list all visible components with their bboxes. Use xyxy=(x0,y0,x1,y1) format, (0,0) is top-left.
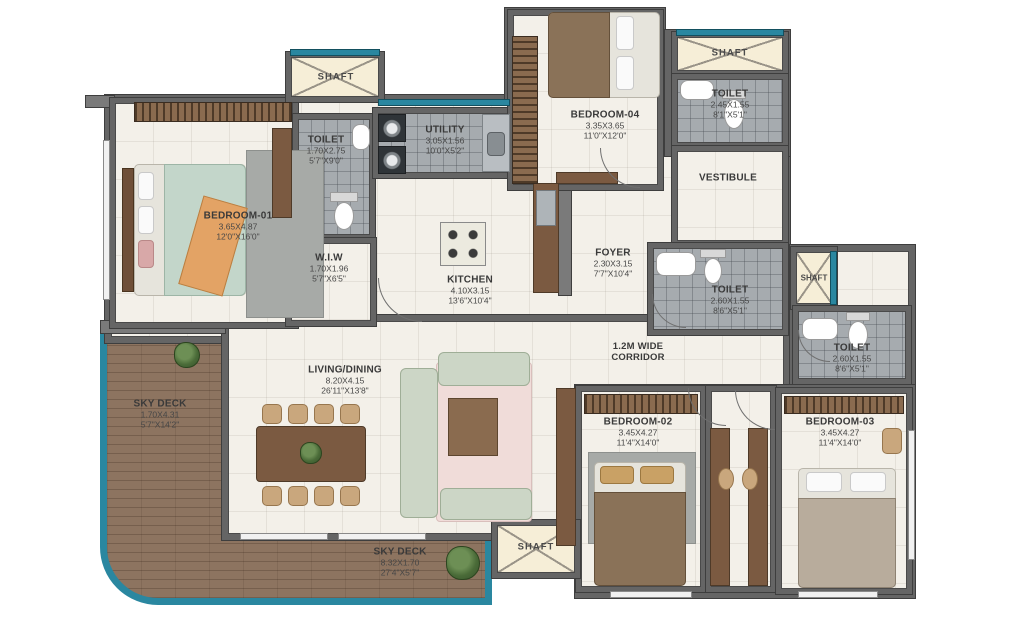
wardrobe-bedroom03-top xyxy=(784,396,904,414)
closet-chair-1 xyxy=(718,468,734,490)
window-bedroom03-right xyxy=(908,430,915,560)
label-sky-deck-bottom: SKY DECK 8.32X1.70 27'4"X5'7" xyxy=(373,547,426,578)
room-dim-imperial: 11'0"X12'0" xyxy=(571,131,640,141)
wall-kitchen-foyer xyxy=(558,178,572,296)
room-name: SHAFT xyxy=(801,274,828,283)
room-dim-metric: 8.32X1.70 xyxy=(373,558,426,568)
room-name: BEDROOM-04 xyxy=(571,110,640,121)
utility-washer-2 xyxy=(378,146,406,174)
pillow-bedroom02-2 xyxy=(640,466,674,484)
room-name: BEDROOM-03 xyxy=(806,417,875,428)
room-dim-metric: 3.65X4.87 xyxy=(204,222,273,232)
room-dim-imperial: 12'0"X16'0" xyxy=(204,232,273,242)
room-dim-metric: 3.05X1.56 xyxy=(425,136,464,146)
pillow-bedroom01-1 xyxy=(138,172,154,200)
label-vestibule: VESTIBULE xyxy=(699,173,757,184)
pillow-bedroom03-2 xyxy=(850,472,886,492)
room-name: TOILET xyxy=(307,135,346,146)
window-bedroom02-bottom xyxy=(610,591,692,598)
room-dim-metric: 4.10X3.15 xyxy=(447,286,493,296)
room-dim-imperial: 27'4"X5'7" xyxy=(373,568,426,578)
label-wiw: W.I.W 1.70X1.96 5'7"X6'5" xyxy=(310,253,349,284)
room-name: UTILITY xyxy=(425,125,464,136)
room-dim-metric: 2.60X1.55 xyxy=(833,354,872,364)
label-sky-deck-left: SKY DECK 1.70X4.31 5'7"X14'2" xyxy=(133,399,186,430)
room-dim-metric: 3.45X4.27 xyxy=(604,428,673,438)
kitchen-sink xyxy=(536,190,556,226)
window-shaft3-right xyxy=(830,251,837,305)
toilet3-basin xyxy=(656,252,696,276)
room-dim-metric: 1.70X1.96 xyxy=(310,264,349,274)
plant-deck-left xyxy=(174,342,200,368)
room-dim-imperial: 13'6"X10'4" xyxy=(447,296,493,306)
plant-deck-bottom xyxy=(446,546,480,580)
room-name: SKY DECK xyxy=(133,399,186,410)
label-bedroom-03: BEDROOM-03 3.45X4.27 11'4"X14'0" xyxy=(806,417,875,448)
room-name: W.I.W xyxy=(310,253,349,264)
label-bedroom-01: BEDROOM-01 3.65X4.87 12'0"X16'0" xyxy=(204,211,273,242)
toilet3-wc-tank xyxy=(700,249,726,258)
closet-chair-2 xyxy=(742,468,758,490)
label-living-dining: LIVING/DINING 8.20X4.15 26'11"X13'8" xyxy=(308,365,382,396)
room-name: VESTIBULE xyxy=(699,173,757,184)
label-toilet-2: TOILET 2.45X1.55 8'1"X5'1" xyxy=(711,89,750,120)
room-dim-imperial: 11'4"X14'0" xyxy=(604,438,673,448)
window-living-bottom-1 xyxy=(240,533,328,540)
pillow-bedroom01-3 xyxy=(138,240,154,268)
duvet-bedroom03 xyxy=(798,498,896,588)
sofa-left xyxy=(400,368,438,518)
dining-chair-2 xyxy=(288,404,308,424)
room-dim-metric: 2.60X1.55 xyxy=(711,296,750,306)
window-bedroom01-left xyxy=(103,140,110,300)
pillow-bedroom04-1 xyxy=(616,16,634,50)
utility-sink-basin xyxy=(487,132,505,156)
coffee-table xyxy=(448,398,498,456)
room-name: SHAFT xyxy=(318,72,355,83)
window-shaft1-top xyxy=(290,49,380,56)
label-bedroom-04: BEDROOM-04 3.35X3.65 11'0"X12'0" xyxy=(571,110,640,141)
window-utility-top xyxy=(378,99,510,106)
sofa-top xyxy=(438,352,530,386)
room-dim-imperial: 5'7"X9'0" xyxy=(307,156,346,166)
label-corridor: 1.2M WIDE CORRIDOR xyxy=(611,341,664,363)
room-dim-imperial: 8'6"X5'1" xyxy=(711,306,750,316)
room-dim-metric: 3.35X3.65 xyxy=(571,121,640,131)
room-dim-imperial: 26'11"X13'8" xyxy=(308,386,382,396)
room-name: SHAFT xyxy=(712,48,749,59)
window-bedroom03-bottom xyxy=(798,591,878,598)
closet-wardrobe-left xyxy=(710,428,730,586)
tv-unit-bedroom01 xyxy=(272,128,292,218)
room-name: TOILET xyxy=(711,89,750,100)
toilet3-wc-bowl xyxy=(704,258,722,284)
window-living-bottom-2 xyxy=(338,533,426,540)
room-name: TOILET xyxy=(711,285,750,296)
toilet1-basin xyxy=(352,124,370,150)
room-dim-metric: 3.45X4.27 xyxy=(806,428,875,438)
room-dim-metric: 8.20X4.15 xyxy=(308,376,382,386)
dining-chair-1 xyxy=(262,404,282,424)
toilet2-basin xyxy=(680,80,714,100)
room-dim-imperial: 8'6"X5'1" xyxy=(833,364,872,374)
wardrobe-bedroom02-top xyxy=(584,394,698,414)
dining-chair-4 xyxy=(340,404,360,424)
label-toilet-3: TOILET 2.60X1.55 8'6"X5'1" xyxy=(711,285,750,316)
room-name: BEDROOM-02 xyxy=(604,417,673,428)
room-dim-imperial: 11'4"X14'0" xyxy=(806,438,875,448)
room-name: TOILET xyxy=(833,343,872,354)
dining-chair-7 xyxy=(314,486,334,506)
wardrobe-bedroom01-top xyxy=(134,102,292,122)
room-name: LIVING/DINING xyxy=(308,365,382,376)
room-name: SKY DECK xyxy=(373,547,426,558)
room-name: KITCHEN xyxy=(447,275,493,286)
corridor-line1: 1.2M WIDE xyxy=(611,341,664,352)
pillow-bedroom01-2 xyxy=(138,206,154,234)
dining-chair-6 xyxy=(288,486,308,506)
utility-washer-1 xyxy=(378,114,406,142)
room-dim-imperial: 5'7"X14'2" xyxy=(133,420,186,430)
room-name: BEDROOM-01 xyxy=(204,211,273,222)
label-shaft-3: SHAFT xyxy=(801,274,828,283)
room-dim-imperial: 7'7"X10'4" xyxy=(594,269,633,279)
armchair-bedroom03 xyxy=(882,428,902,454)
label-shaft-2: SHAFT xyxy=(712,48,749,59)
room-name: SHAFT xyxy=(518,542,555,553)
room-dim-imperial: 8'1"X5'1" xyxy=(711,110,750,120)
room-dim-imperial: 5'7"X6'5" xyxy=(310,274,349,284)
duvet-bedroom02 xyxy=(594,492,686,586)
room-dim-metric: 1.70X2.75 xyxy=(307,146,346,156)
label-foyer: FOYER 2.30X3.15 7'7"X10'4" xyxy=(594,248,633,279)
wardrobe-bedroom04 xyxy=(512,36,538,184)
pillow-bedroom03-1 xyxy=(806,472,842,492)
label-bedroom-02: BEDROOM-02 3.45X4.27 11'4"X14'0" xyxy=(604,417,673,448)
toilet1-wc-tank xyxy=(330,192,358,202)
label-toilet-1: TOILET 1.70X2.75 5'7"X9'0" xyxy=(307,135,346,166)
bed-headboard-bedroom01 xyxy=(122,168,134,292)
toilet4-wc-tank xyxy=(846,312,870,321)
room-vestibule xyxy=(672,146,788,246)
sofa-bottom xyxy=(440,488,532,520)
corridor-line2: CORRIDOR xyxy=(611,352,664,363)
closet-wardrobe-right xyxy=(748,428,768,586)
label-toilet-4: TOILET 2.60X1.55 8'6"X5'1" xyxy=(833,343,872,374)
label-shaft-1: SHAFT xyxy=(318,72,355,83)
label-kitchen: KITCHEN 4.10X3.15 13'6"X10'4" xyxy=(447,275,493,306)
room-dim-imperial: 10'0"X5'2" xyxy=(425,146,464,156)
room-name: FOYER xyxy=(594,248,633,259)
label-shaft-4: SHAFT xyxy=(518,542,555,553)
pillow-bedroom02-1 xyxy=(600,466,634,484)
room-dim-metric: 2.45X1.55 xyxy=(711,100,750,110)
pillow-bedroom04-2 xyxy=(616,56,634,90)
floor-plan: BEDROOM-01 3.65X4.87 12'0"X16'0" SHAFT T… xyxy=(0,0,1024,619)
wardrobe-bedroom02-left xyxy=(556,388,576,546)
dining-chair-3 xyxy=(314,404,334,424)
room-dim-metric: 1.70X4.31 xyxy=(133,410,186,420)
kitchen-hob xyxy=(440,222,486,266)
toilet1-wc-bowl xyxy=(334,202,354,230)
dining-chair-8 xyxy=(340,486,360,506)
label-utility: UTILITY 3.05X1.56 10'0"X5'2" xyxy=(425,125,464,156)
dining-table-plant xyxy=(300,442,322,464)
window-shaft2-top xyxy=(676,29,784,36)
dining-chair-5 xyxy=(262,486,282,506)
room-dim-metric: 2.30X3.15 xyxy=(594,259,633,269)
duvet-bedroom04 xyxy=(548,12,610,98)
